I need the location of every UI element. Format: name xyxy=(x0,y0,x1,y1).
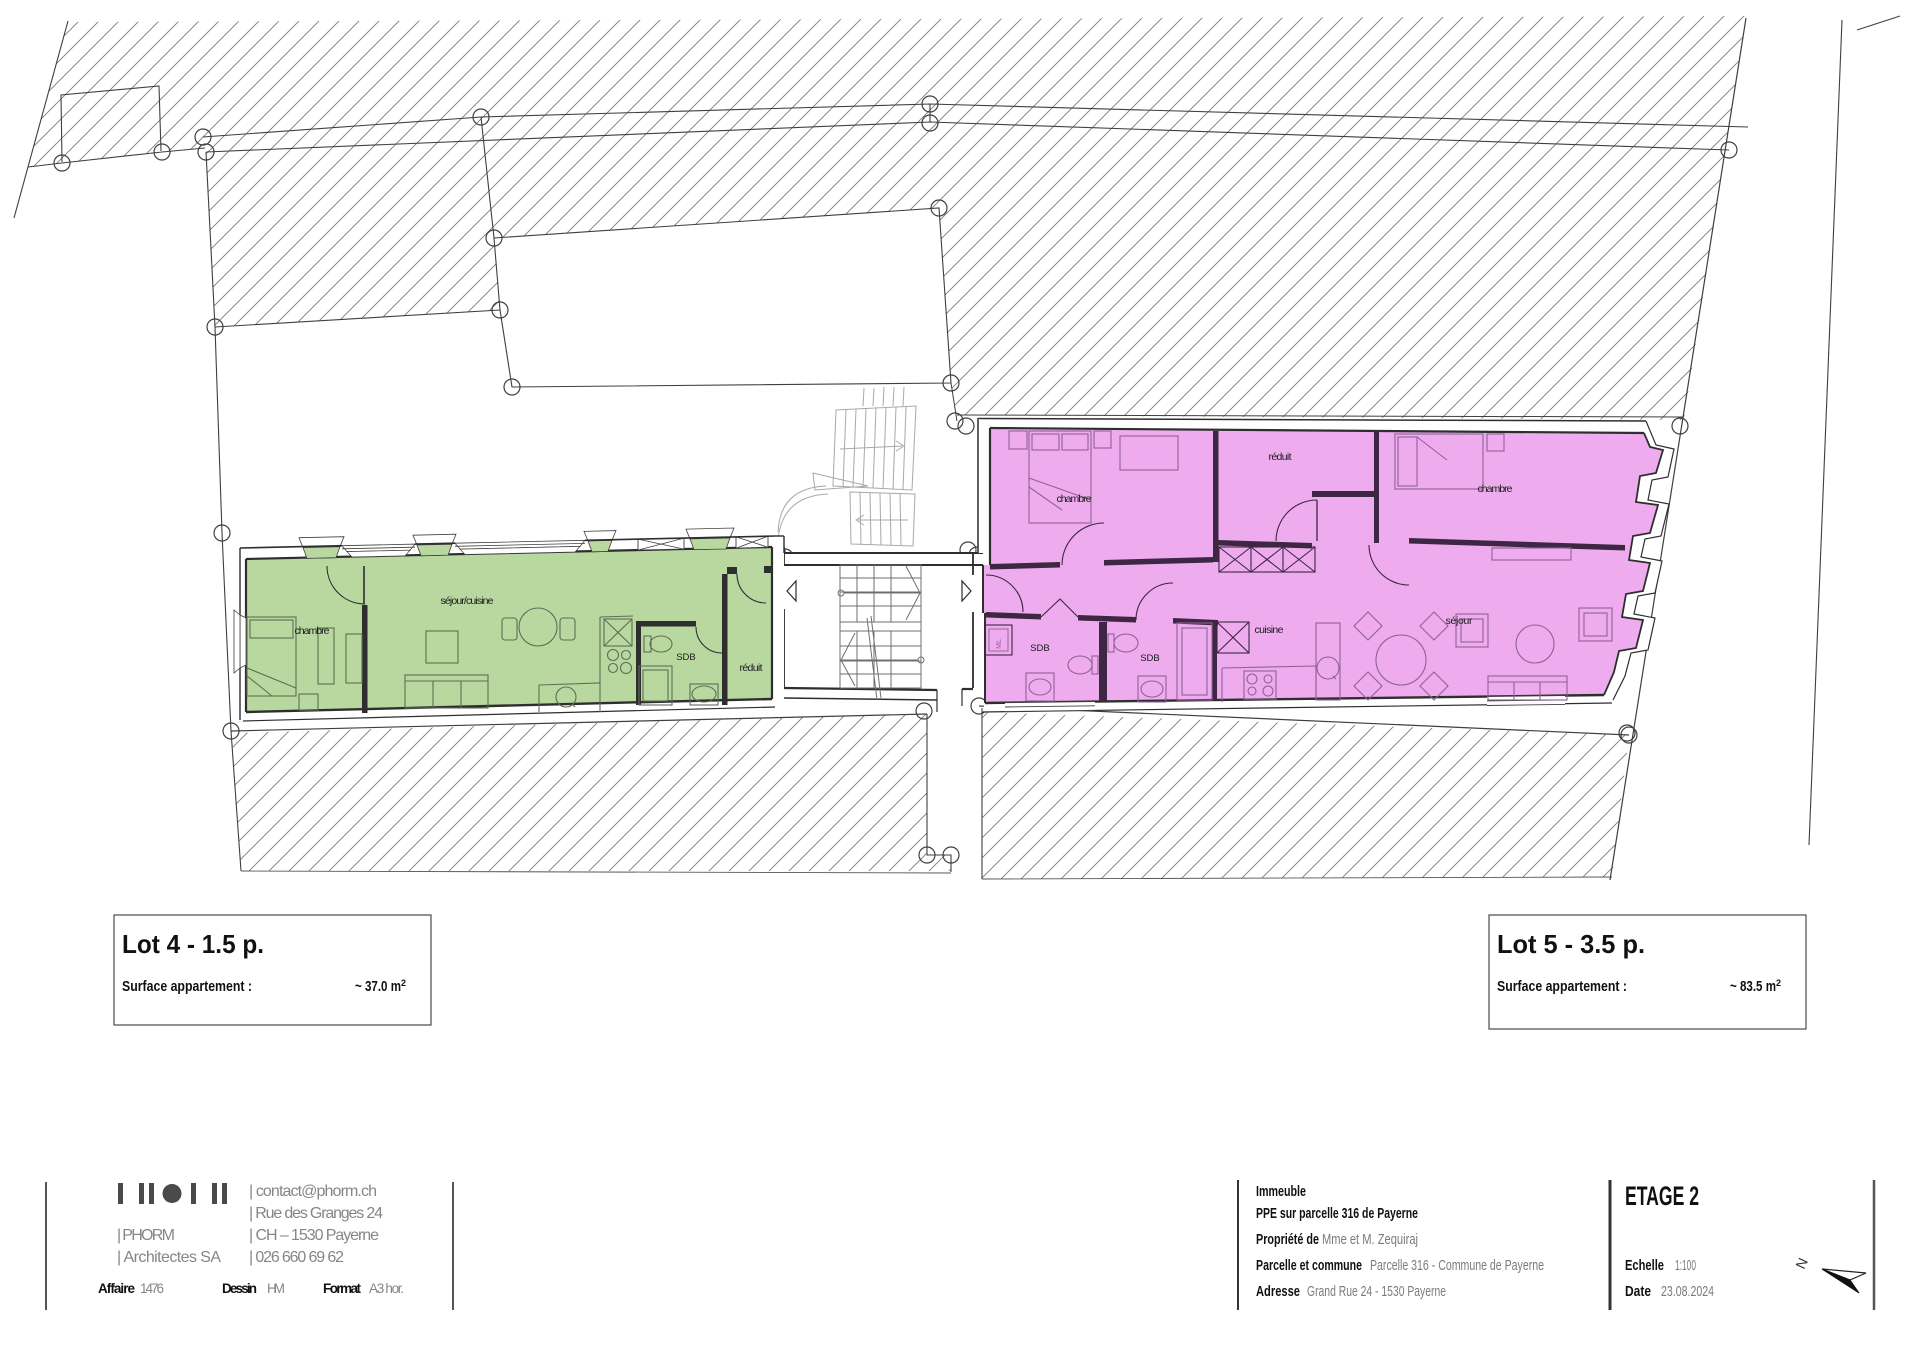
svg-text:| Rue des Granges 24: | Rue des Granges 24 xyxy=(249,1205,383,1222)
svg-text:Date: Date xyxy=(1625,1283,1651,1300)
svg-text:Dessin: Dessin xyxy=(222,1281,257,1296)
svg-text:| 026 660 69 62: | 026 660 69 62 xyxy=(249,1249,344,1266)
svg-text:Grand Rue 24 - 1530 Payerne: Grand Rue 24 - 1530 Payerne xyxy=(1307,1283,1446,1300)
svg-text:1:100: 1:100 xyxy=(1675,1257,1696,1274)
svg-text:23.08.2024: 23.08.2024 xyxy=(1661,1283,1714,1300)
svg-text:PPE sur parcelle 316 de Payern: PPE sur parcelle 316 de Payerne xyxy=(1256,1205,1418,1222)
svg-text:Propriété de: Propriété de xyxy=(1256,1231,1319,1248)
svg-text:Parcelle 316 - Commune de Paye: Parcelle 316 - Commune de Payerne xyxy=(1370,1257,1544,1274)
svg-text:chambre: chambre xyxy=(1478,483,1513,495)
svg-text:A3 hor.: A3 hor. xyxy=(369,1281,404,1296)
svg-text:Lot 4 - 1.5 p.: Lot 4 - 1.5 p. xyxy=(122,929,264,959)
svg-text:Mme et M. Zequiraj: Mme et M. Zequiraj xyxy=(1322,1231,1418,1248)
svg-text:SDB: SDB xyxy=(676,652,696,663)
svg-text:ML: ML xyxy=(996,639,1003,649)
svg-text:chambre: chambre xyxy=(295,625,330,637)
svg-text:réduit: réduit xyxy=(1269,451,1292,463)
svg-text:Echelle: Echelle xyxy=(1625,1257,1664,1274)
svg-text:SDB: SDB xyxy=(1140,653,1160,664)
svg-text:| contact@phorm.ch: | contact@phorm.ch xyxy=(249,1183,377,1200)
svg-text:| PHORM: | PHORM xyxy=(117,1227,175,1244)
svg-text:~ 83.5 m2: ~ 83.5 m2 xyxy=(1730,978,1781,995)
svg-text:Surface appartement :: Surface appartement : xyxy=(1497,978,1627,995)
svg-text:Parcelle et commune: Parcelle et commune xyxy=(1256,1257,1362,1274)
svg-text:chambre: chambre xyxy=(1057,493,1092,505)
svg-text:cuisine: cuisine xyxy=(1255,624,1284,636)
svg-text:| Architectes SA: | Architectes SA xyxy=(117,1249,221,1266)
svg-text:| CH – 1530 Payerne: | CH – 1530 Payerne xyxy=(249,1227,379,1244)
svg-text:SDB: SDB xyxy=(1030,643,1050,654)
svg-text:réduit: réduit xyxy=(740,662,763,674)
svg-text:séjour: séjour xyxy=(1446,615,1474,627)
svg-text:HM: HM xyxy=(267,1281,285,1296)
svg-text:Affaire: Affaire xyxy=(98,1281,135,1296)
svg-text:~ 37.0 m2: ~ 37.0 m2 xyxy=(355,978,406,995)
svg-text:Surface appartement :: Surface appartement : xyxy=(122,978,252,995)
svg-text:Format: Format xyxy=(323,1281,362,1296)
svg-text:séjour/cuisine: séjour/cuisine xyxy=(441,595,494,607)
svg-text:Adresse: Adresse xyxy=(1256,1283,1300,1300)
svg-text:ETAGE 2: ETAGE 2 xyxy=(1625,1181,1699,1211)
svg-text:Immeuble: Immeuble xyxy=(1256,1183,1306,1200)
svg-text:1476: 1476 xyxy=(140,1281,164,1296)
svg-text:Lot 5 - 3.5 p.: Lot 5 - 3.5 p. xyxy=(1497,929,1645,959)
